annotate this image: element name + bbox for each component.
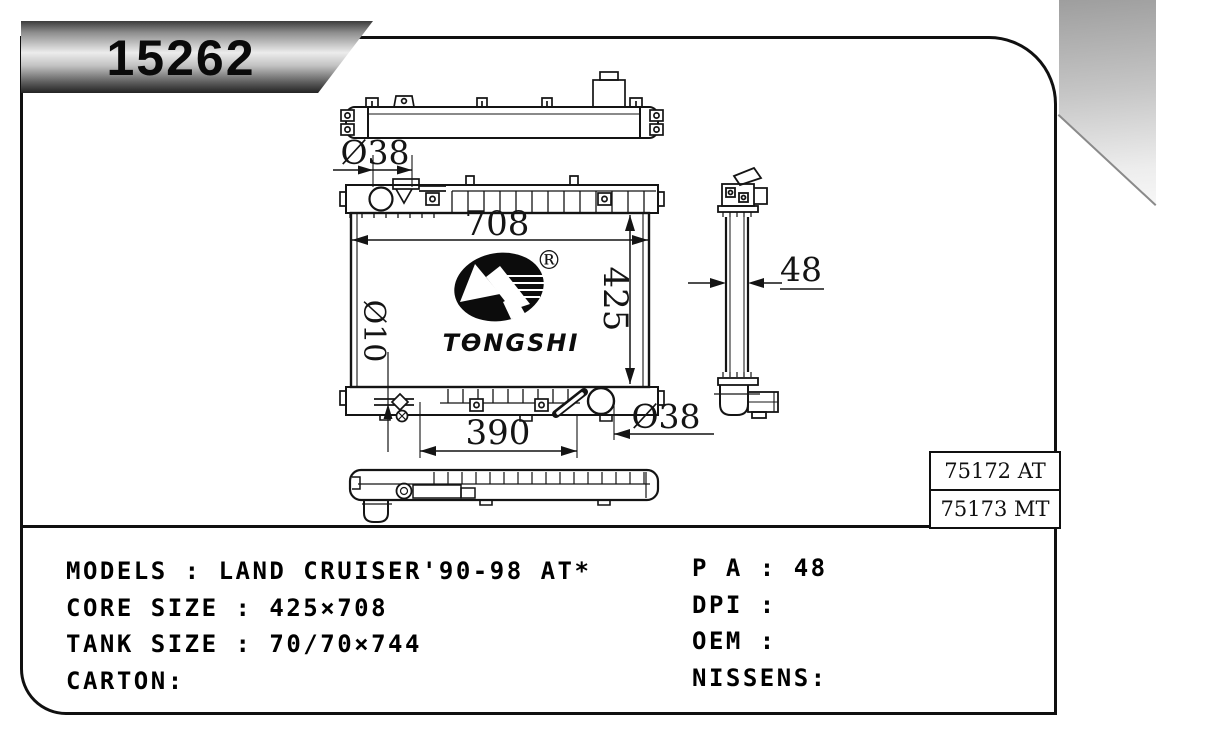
reference-table: 75172 AT 75173 MT	[929, 451, 1061, 529]
part-number-badge: 15262	[21, 21, 373, 93]
spec-row-tank-size: TANK SIZE : 70/70×744	[66, 626, 591, 663]
spec-row-models: MODELS : LAND CRUISER'90-98 AT*	[66, 553, 591, 590]
spec-row-oem: OEM :	[692, 623, 828, 660]
specs-left-column: MODELS : LAND CRUISER'90-98 AT* CORE SIZ…	[66, 553, 591, 699]
radiator-datasheet: Ø38 708 425 Ø10 390	[0, 0, 1211, 737]
spec-row-carton: CARTON:	[66, 663, 591, 700]
table-row: 75173 MT	[931, 489, 1059, 527]
spec-row-nissens: NISSENS:	[692, 660, 828, 697]
table-row: 75172 AT	[931, 453, 1059, 489]
part-number: 15262	[21, 21, 341, 93]
specs-right-column: P A : 48 DPI : OEM : NISSENS:	[692, 550, 828, 696]
spec-divider-line	[23, 525, 1057, 528]
spec-row-core-size: CORE SIZE : 425×708	[66, 590, 591, 627]
spec-row-pa: P A : 48	[692, 550, 828, 587]
spec-row-dpi: DPI :	[692, 587, 828, 624]
